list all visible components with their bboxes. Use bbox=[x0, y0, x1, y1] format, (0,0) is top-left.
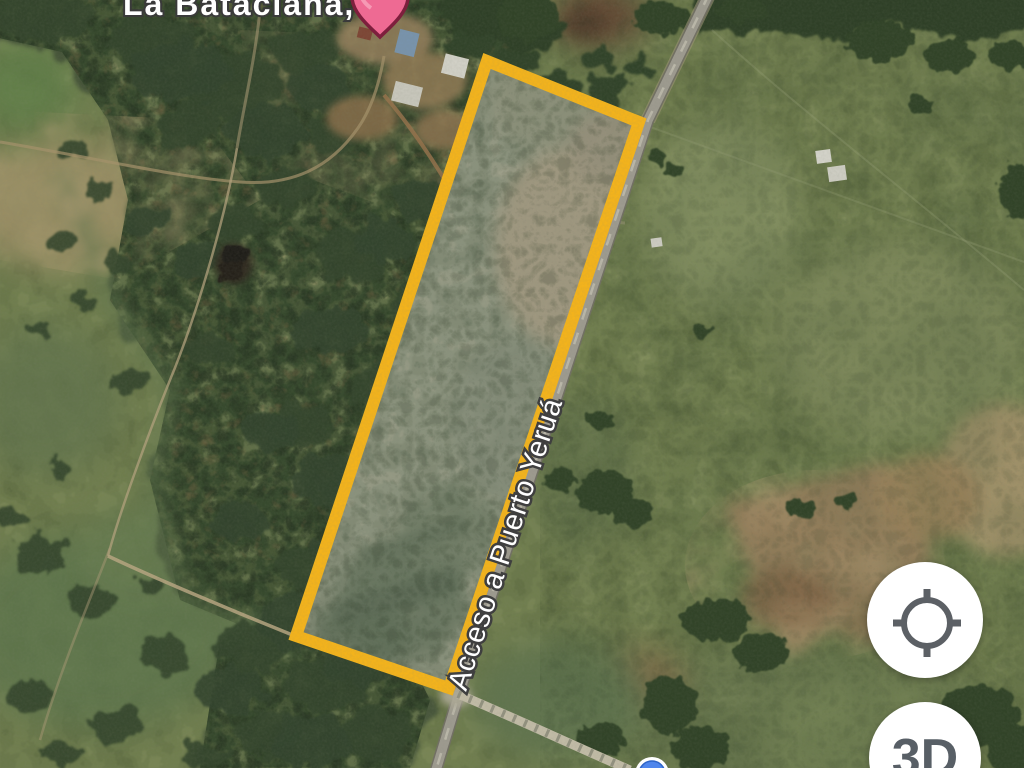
svg-text:La Bataclana,: La Bataclana, bbox=[123, 0, 355, 22]
svg-text:3D: 3D bbox=[892, 729, 958, 768]
